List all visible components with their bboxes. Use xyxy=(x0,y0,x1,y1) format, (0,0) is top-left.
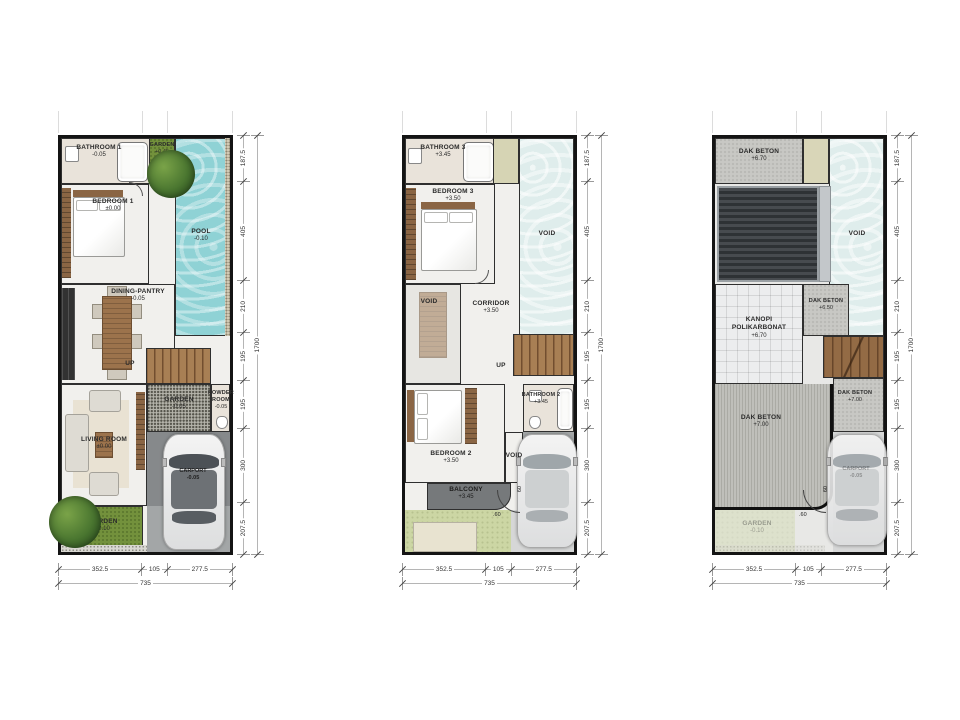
chair-icon xyxy=(131,304,142,319)
grid-line xyxy=(511,111,512,133)
sofa-icon xyxy=(65,414,89,472)
gate-dim-v: 60 xyxy=(517,486,523,492)
deck-icon xyxy=(413,522,477,552)
bed-headboard xyxy=(421,202,475,209)
sink-icon xyxy=(408,148,422,164)
grid-line xyxy=(58,111,59,133)
dim-total-right: 1700 xyxy=(905,135,918,555)
gravel-strip xyxy=(715,545,825,552)
floor1-outline: BATHROOM 1-0.05 GARDEN+0.45 POOL-0.10 BE… xyxy=(58,135,233,555)
media-wall-icon xyxy=(136,392,145,470)
stair-opening xyxy=(823,336,884,378)
dim-total-bottom: 735 xyxy=(712,577,887,590)
planter xyxy=(493,138,519,184)
tree-icon xyxy=(49,496,101,548)
grid-line xyxy=(402,111,403,133)
floor2-plan: BATHROOM 3+3.45 VOID BEDROOM 3+3.50 VOID xyxy=(402,135,577,555)
dim-total-right: 1700 xyxy=(595,135,608,555)
void-right xyxy=(519,138,574,336)
armchair-icon xyxy=(89,390,121,412)
toilet-icon xyxy=(529,416,541,429)
kanopi-polikarbonat xyxy=(715,284,803,384)
kitchen-counter-icon xyxy=(62,288,75,380)
wardrobe-icon xyxy=(465,388,477,444)
bed-headboard xyxy=(407,390,414,442)
dining-table-icon xyxy=(102,296,132,370)
floor2-outline: BATHROOM 3+3.45 VOID BEDROOM 3+3.50 VOID xyxy=(402,135,577,555)
bathtub-icon xyxy=(463,142,494,182)
bed-headboard xyxy=(73,190,123,197)
dim-chain-bottom: 352.5 105 277.5 xyxy=(58,563,233,576)
stairs xyxy=(513,334,574,376)
ghost-table-icon xyxy=(419,292,447,358)
coffee-table-icon xyxy=(95,432,113,458)
grid-line xyxy=(796,111,797,133)
tree-icon xyxy=(147,150,195,198)
sink-icon xyxy=(65,146,79,162)
wardrobe-icon xyxy=(406,188,416,280)
car-icon xyxy=(163,434,225,550)
grid-line xyxy=(886,111,887,133)
chair-icon xyxy=(107,369,127,380)
pillow-icon xyxy=(417,418,428,440)
grid-line xyxy=(232,111,233,133)
stairs xyxy=(146,348,211,384)
pool-edge xyxy=(225,138,230,336)
roof-outline: DAK BETON+6.70 VOID KANOPIPOLIKARBONAT+6… xyxy=(712,135,887,555)
grid-line xyxy=(486,111,487,133)
roof-gutter xyxy=(819,186,831,282)
floor1-plan: BATHROOM 1-0.05 GARDEN+0.45 POOL-0.10 BE… xyxy=(58,135,233,555)
pillow-icon xyxy=(449,212,473,223)
dak-beton-top xyxy=(715,138,803,184)
dim-chain-right: 187.5 405 210 195 195 300 207.5 xyxy=(581,135,594,555)
pillow-icon xyxy=(417,393,428,415)
corridor xyxy=(461,284,519,384)
pillow-icon xyxy=(76,200,98,211)
gate-dim-v: 60 xyxy=(823,486,829,492)
grid-line xyxy=(821,111,822,133)
dim-chain-right: 187.5 405 210 195 195 300 207.5 xyxy=(891,135,904,555)
roof-plan: DAK BETON+6.70 VOID KANOPIPOLIKARBONAT+6… xyxy=(712,135,887,555)
bathtub-icon xyxy=(557,388,573,430)
car-icon xyxy=(827,434,887,546)
car-icon xyxy=(517,434,577,548)
toilet-icon xyxy=(216,416,228,429)
drawing-canvas: BATHROOM 1-0.05 GARDEN+0.45 POOL-0.10 BE… xyxy=(0,0,960,720)
grid-line xyxy=(142,111,143,133)
chair-icon xyxy=(131,334,142,349)
carport-faded-label: CARPORT-0.05 xyxy=(833,466,879,480)
pillow-icon xyxy=(99,200,121,211)
dim-total-bottom: 735 xyxy=(402,577,577,590)
bathtub-icon xyxy=(117,142,148,182)
gate-dim-h: .60 xyxy=(493,512,501,518)
garden-mid xyxy=(147,384,211,432)
sink-icon xyxy=(529,390,542,402)
dim-total-right: 1700 xyxy=(251,135,264,555)
planter xyxy=(803,138,829,184)
dim-chain-right: 187.5 405 210 195 195 300 207.5 xyxy=(237,135,250,555)
grid-line xyxy=(712,111,713,133)
grid-line xyxy=(167,111,168,133)
wardrobe-icon xyxy=(62,188,71,278)
dak-beton-right xyxy=(833,378,884,432)
gate-dim-h: .60 xyxy=(799,512,807,518)
dim-chain-bottom: 352.5 105 277.5 xyxy=(712,563,887,576)
armchair-icon xyxy=(89,472,119,496)
pillow-icon xyxy=(424,212,448,223)
dim-total-bottom: 735 xyxy=(58,577,233,590)
metal-roof xyxy=(717,186,819,282)
grid-line xyxy=(576,111,577,133)
carport-label: CARPORT-0.05 xyxy=(171,468,215,482)
dak-beton-mid xyxy=(803,284,849,336)
dim-chain-bottom: 352.5 105 277.5 xyxy=(402,563,577,576)
